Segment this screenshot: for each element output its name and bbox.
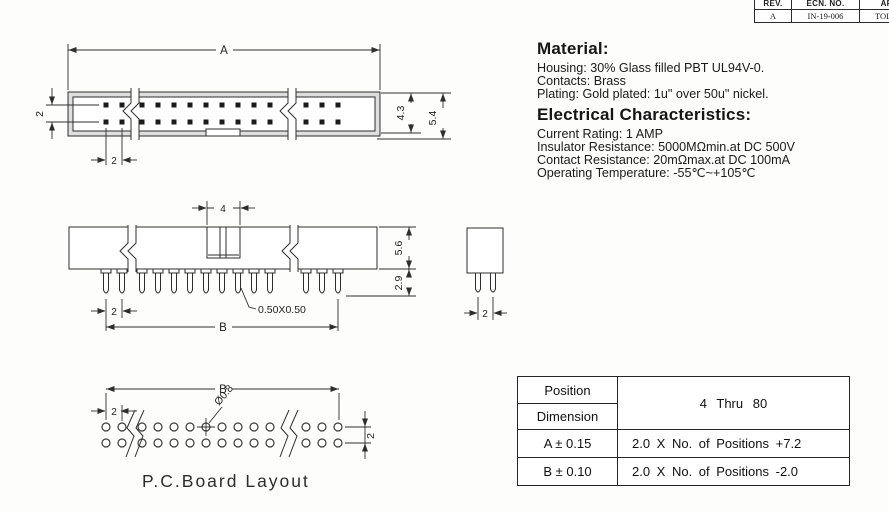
dim-b-label: B — [219, 322, 227, 334]
pcb-layout-drawing: B 2 Ø0.8 2 — [91, 383, 377, 459]
pin-shoulder — [169, 269, 179, 273]
pin-shoulder — [265, 269, 275, 273]
contact-square — [320, 120, 325, 125]
pin-shoulder — [101, 269, 111, 273]
dim-row-pitch-label: 2 — [34, 111, 46, 117]
electrical-title: Electrical Characteristics: — [537, 105, 882, 125]
side-view-pins — [101, 269, 343, 293]
spec-position-label: Position — [518, 377, 618, 404]
pin — [252, 273, 257, 293]
pcb-hole — [334, 439, 342, 447]
pin-shoulder — [185, 269, 195, 273]
contact-square — [320, 103, 325, 108]
contact-square — [220, 120, 225, 125]
pin-shoulder — [233, 269, 243, 273]
pin — [336, 273, 341, 293]
pcb-hole — [318, 439, 326, 447]
pin — [491, 273, 496, 292]
contact-square — [104, 120, 109, 125]
spec-dim-a-cell: A ± 0.15 — [518, 430, 618, 458]
pin-shoulder — [317, 269, 327, 273]
revision-table: REV. ECN. NO. APP. A IN-19-006 TOL CH — [754, 0, 889, 23]
pcb-dim-pitch-label: 2 — [111, 407, 117, 418]
pin-shoulder — [201, 269, 211, 273]
contact-square — [120, 103, 125, 108]
contact-square — [268, 120, 273, 125]
pcb-hole — [234, 423, 242, 431]
pin — [188, 273, 193, 293]
contact-square — [220, 103, 225, 108]
pin-shoulder — [249, 269, 259, 273]
pin — [104, 273, 109, 293]
rev-header-app: APP. — [860, 0, 889, 10]
pcb-hole — [302, 423, 310, 431]
pin — [156, 273, 161, 293]
spec-dim-b-cell: B ± 0.10 — [518, 458, 618, 485]
dim-body-height-label: 5.6 — [393, 241, 405, 256]
pin — [172, 273, 177, 293]
pcb-hole — [334, 423, 342, 431]
electrical-current: Current Rating: 1 AMP — [537, 128, 882, 141]
pcb-hole — [234, 439, 242, 447]
pin-shoulder — [117, 269, 127, 273]
pin-shoulder — [333, 269, 343, 273]
pcb-hole — [266, 423, 274, 431]
rev-cell-rev: A — [755, 10, 792, 22]
contact-square — [268, 103, 273, 108]
spec-formula-a-cell: 2.0 X No. of Positions +7.2 — [618, 430, 849, 458]
pin — [120, 273, 125, 293]
pcb-hole — [218, 439, 226, 447]
contact-square — [204, 103, 209, 108]
dim-pin-size-label: 0.50X0.50 — [258, 304, 306, 316]
rev-cell-app: TOL CH — [860, 10, 889, 22]
pcb-holes — [102, 423, 342, 447]
pcb-hole — [118, 423, 126, 431]
pcb-hole — [138, 423, 146, 431]
pin-shoulder — [137, 269, 147, 273]
dim-a-label: A — [220, 45, 228, 57]
pin — [236, 273, 241, 293]
pcb-hole — [170, 439, 178, 447]
pcb-hole-dia-label: Ø0.8 — [212, 383, 236, 408]
pcb-hole — [302, 439, 310, 447]
pcb-hole — [186, 439, 194, 447]
contact-square — [304, 103, 309, 108]
dim-inner-height-label: 4.3 — [395, 106, 407, 121]
spec-dimension-label: Dimension — [518, 404, 618, 430]
top-view-drawing: A 2 2 4.3 5.4 — [34, 44, 451, 167]
pin — [320, 273, 325, 293]
pin — [304, 273, 309, 293]
pin — [204, 273, 209, 293]
material-title: Material: — [537, 39, 882, 59]
dim-pin-pitch-label: 2 — [111, 156, 117, 167]
pcb-hole — [250, 439, 258, 447]
contact-square — [140, 120, 145, 125]
contact-square — [252, 103, 257, 108]
contact-square — [104, 103, 109, 108]
material-plating: Plating: Gold plated: 1u" over 50u" nick… — [537, 88, 882, 101]
spec-formula-b-cell: 2.0 X No. of Positions -2.0 — [618, 458, 849, 485]
contact-square — [188, 103, 193, 108]
pin-shoulder — [153, 269, 163, 273]
contact-square — [336, 103, 341, 108]
pcb-layout-caption: P.C.Board Layout — [142, 471, 310, 492]
rev-header-ecn: ECN. NO. — [792, 0, 860, 10]
pcb-hole — [266, 439, 274, 447]
pin-shoulder — [301, 269, 311, 273]
pcb-hole — [102, 423, 110, 431]
pin — [268, 273, 273, 293]
dim-side-pitch-label: 2 — [111, 307, 117, 318]
pcb-dim-row-label: 2 — [365, 433, 377, 439]
notes-section: Material: Housing: 30% Glass filled PBT … — [537, 39, 882, 180]
contact-square — [336, 120, 341, 125]
pin — [476, 273, 481, 292]
pcb-hole — [250, 423, 258, 431]
pcb-hole — [102, 439, 110, 447]
pcb-hole — [318, 423, 326, 431]
contact-square — [156, 103, 161, 108]
pin — [220, 273, 225, 293]
pcb-hole — [154, 423, 162, 431]
contact-square — [140, 103, 145, 108]
contact-square — [172, 103, 177, 108]
pin-shoulder — [217, 269, 227, 273]
contact-square — [236, 103, 241, 108]
pcb-hole — [154, 439, 162, 447]
side-view-drawing: 4 0.50X0.50 2 B 5.6 2.9 — [69, 201, 416, 334]
pcb-hole — [170, 423, 178, 431]
end-view-pins — [476, 273, 496, 292]
pin — [140, 273, 145, 293]
rev-cell-ecn: IN-19-006 — [792, 10, 860, 22]
pcb-hole — [202, 439, 210, 447]
pcb-hole — [186, 423, 194, 431]
contact-square — [236, 120, 241, 125]
contact-square — [172, 120, 177, 125]
contact-square — [120, 120, 125, 125]
contact-square — [188, 120, 193, 125]
spec-table: Position 4 Thru 80 Dimension A ± 0.15 2.… — [517, 376, 850, 486]
dim-pin-length-label: 2.9 — [393, 276, 405, 291]
contact-square — [304, 120, 309, 125]
contact-square — [252, 120, 257, 125]
end-view-drawing: 2 — [464, 228, 507, 320]
contact-square — [156, 120, 161, 125]
electrical-temperature: Operating Temperature: -55℃~+105℃ — [537, 167, 882, 180]
dim-end-pitch-label: 2 — [482, 309, 488, 320]
dim-key-width-label: 4 — [220, 204, 226, 215]
rev-header-rev: REV. — [755, 0, 792, 10]
spec-range-cell: 4 Thru 80 — [618, 377, 849, 430]
dim-outer-height-label: 5.4 — [427, 111, 439, 126]
datasheet-page: A 2 2 4.3 5.4 — [0, 0, 889, 512]
contact-square — [204, 120, 209, 125]
pcb-hole — [218, 423, 226, 431]
pcb-hole — [118, 439, 126, 447]
